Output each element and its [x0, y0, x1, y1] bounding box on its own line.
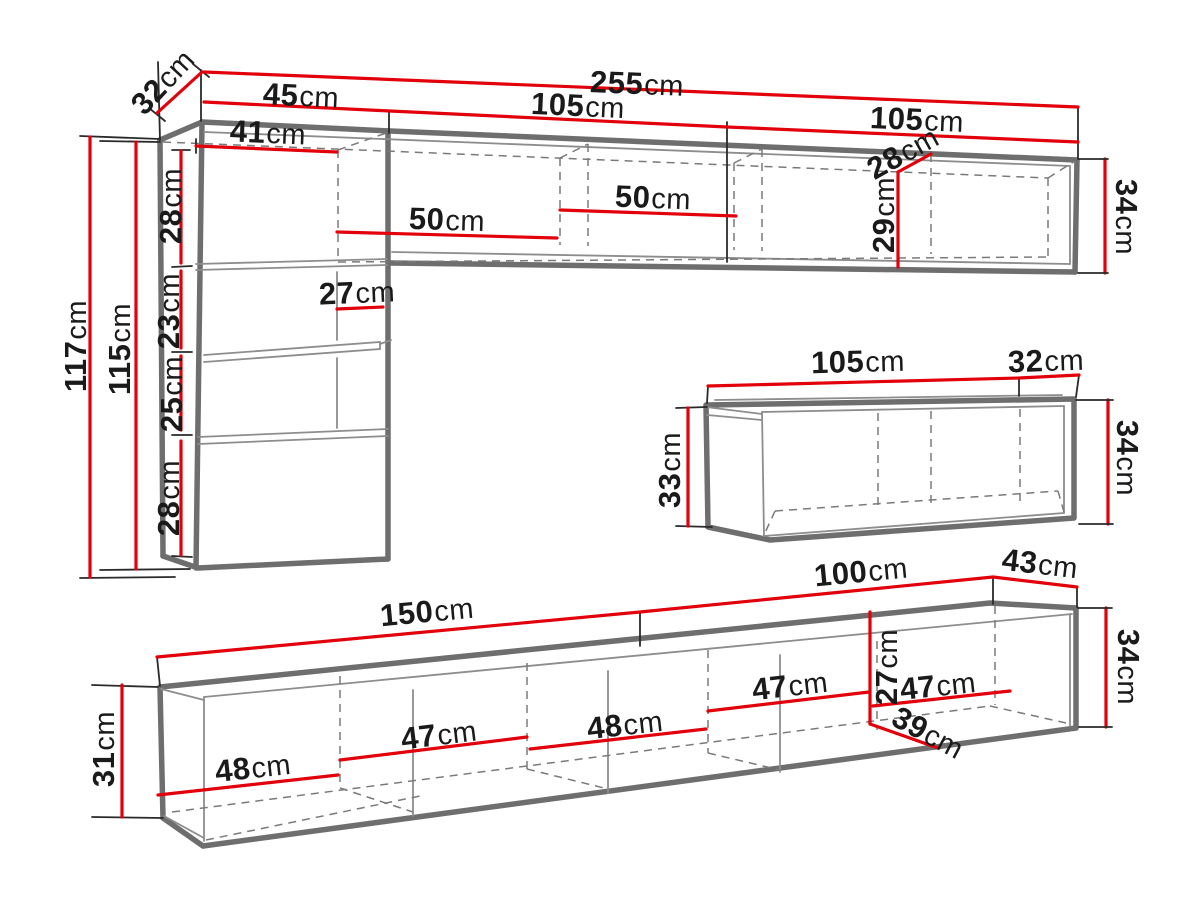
- dim-cabinet-section4: 28cm: [153, 460, 185, 536]
- dim-tvstand-inner-height: 27cm: [871, 629, 903, 705]
- dim-cabinet-height-outer: 117cm: [60, 300, 92, 392]
- dim-cabinet-mid-width: 27cm: [318, 275, 395, 310]
- dim-top-left-width: 45cm: [262, 78, 340, 113]
- dim-tvstand-comp5: 47cm: [898, 666, 977, 706]
- dim-cabinet-section2: 23cm: [153, 273, 185, 349]
- dim-tvstand-height-right: 34cm: [1112, 629, 1144, 705]
- dim-cabinet-section1: 28cm: [155, 168, 187, 244]
- dim-midcabinet-width: 105cm: [811, 345, 906, 379]
- furniture-dimension-diagram: 32cm 255cm 45cm 105cm 105cm 41cm 28cm 23…: [0, 0, 1200, 900]
- dim-midcabinet-height-left: 33cm: [654, 432, 686, 508]
- dim-cabinet-section3: 25cm: [156, 356, 188, 432]
- dim-tvstand-height-left: 31cm: [88, 711, 120, 787]
- dim-shelf-compartment-left: 50cm: [408, 203, 485, 237]
- diagram-linework: [0, 0, 1200, 900]
- dim-midcabinet-depth: 32cm: [1007, 344, 1084, 379]
- dim-cabinet-inner-width: 41cm: [229, 115, 306, 150]
- middle-wall-cabinet-panels: [706, 395, 1064, 536]
- dim-shelf-compartment-right: 50cm: [614, 181, 691, 216]
- dim-top-mid-width: 105cm: [530, 88, 625, 124]
- dim-midcabinet-height-right: 34cm: [1111, 420, 1143, 496]
- dim-cabinet-height-inner: 115cm: [104, 303, 136, 395]
- dim-shelf-inner-height: 29cm: [868, 177, 900, 253]
- dim-shelf-height: 34cm: [1110, 179, 1142, 255]
